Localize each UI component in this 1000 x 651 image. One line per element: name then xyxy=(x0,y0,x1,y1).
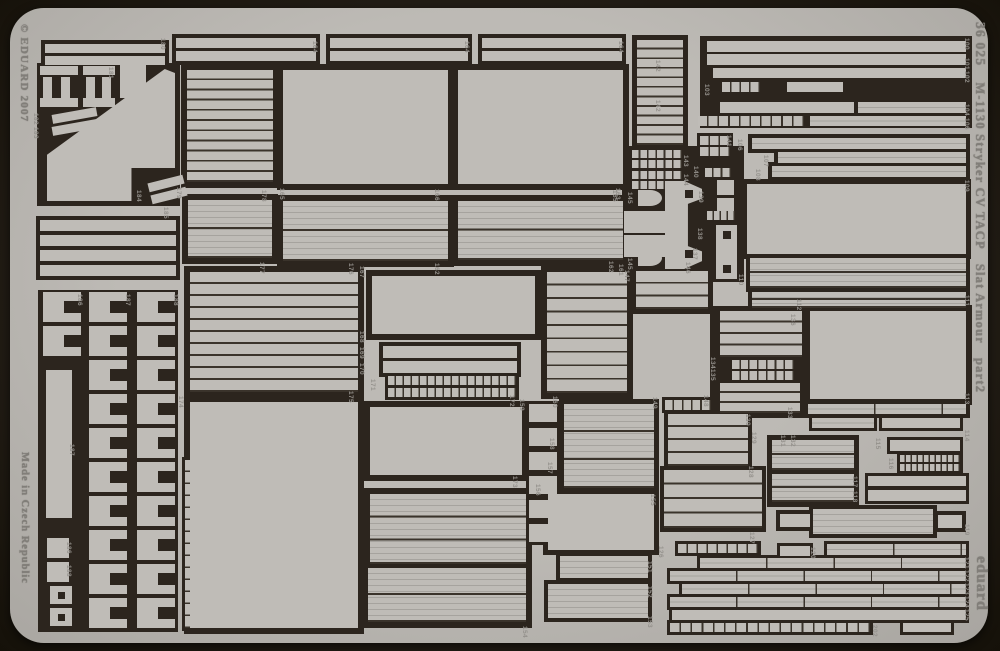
part-number-label: 110 xyxy=(737,274,744,286)
pe-part-slats xyxy=(190,402,358,628)
part-cutout xyxy=(58,592,65,599)
pe-part-strip xyxy=(670,597,966,607)
pe-part-slats xyxy=(637,40,683,145)
pe-part-lightgroup xyxy=(370,494,526,564)
part-number-label: 117 xyxy=(851,476,858,488)
sheet-title-text: 36 025M-1130 Stryker CV TACPSlat Armourp… xyxy=(972,22,988,393)
pe-part-plain xyxy=(624,211,669,233)
pe-part-ladder xyxy=(700,147,730,156)
part-number-label: 124 xyxy=(963,596,970,608)
part-number-label: 151 xyxy=(646,561,653,573)
part-number-label: 100 xyxy=(963,38,970,50)
pe-part-lightgroup xyxy=(564,404,654,488)
pe-part-cbracket xyxy=(89,292,127,322)
part-number-label: 155 xyxy=(649,494,656,506)
pe-part-slats xyxy=(190,272,358,392)
part-number-label: 202 xyxy=(871,625,878,637)
pe-part-slats xyxy=(458,70,623,184)
part-number-label: 145 xyxy=(626,192,633,204)
pe-part-strip xyxy=(752,138,966,149)
pe-part-strip xyxy=(700,558,966,568)
part-number-label: 170 xyxy=(358,363,365,375)
pe-part-ladder xyxy=(698,116,804,126)
pe-part-clip xyxy=(638,250,662,266)
pe-part-clip xyxy=(717,180,734,195)
part-number-label: 135 xyxy=(709,369,716,381)
pe-part-cbracket xyxy=(89,428,127,458)
part-number-label: 182 xyxy=(32,113,39,125)
pe-part-ladder xyxy=(383,346,517,358)
part-number-label: 186 xyxy=(76,294,83,306)
part-number-label: 171 xyxy=(369,379,376,391)
pe-part-ladder xyxy=(732,360,794,369)
pe-part-strip xyxy=(812,418,874,428)
part-cutout xyxy=(110,369,127,381)
part-number-label: 158 xyxy=(548,438,555,450)
pe-part-strip xyxy=(707,54,966,65)
pe-part-ladder xyxy=(45,56,165,65)
part-number-label: 133 xyxy=(786,407,793,419)
part-number-label: 164 xyxy=(463,41,470,53)
pe-part-plain xyxy=(43,77,52,98)
part-number-label: 160 xyxy=(551,396,558,408)
part-cutout xyxy=(158,437,175,449)
pe-part-ladder xyxy=(707,211,735,220)
part-number-label: 152 xyxy=(646,586,653,598)
pe-part-ladder xyxy=(330,51,468,61)
pe-part-slats xyxy=(283,70,448,184)
part-number-label: 101 xyxy=(963,58,970,70)
part-cutout xyxy=(58,614,65,621)
part-number-label: 121 xyxy=(963,557,970,569)
pe-part-ladder xyxy=(482,38,622,48)
part-number-label: 156 xyxy=(534,484,541,496)
part-number-label: 165 xyxy=(611,190,618,202)
pe-part-ladder xyxy=(330,38,468,48)
pe-part-plain xyxy=(61,77,70,98)
pe-part-ladder xyxy=(632,160,682,168)
part-number-label: 108 xyxy=(754,169,761,181)
pe-part-strip xyxy=(810,116,966,126)
pe-part-ladder xyxy=(868,490,966,501)
pe-part-cbracket xyxy=(89,360,127,390)
pe-part-ladder xyxy=(722,82,760,92)
part-cutout xyxy=(158,539,175,551)
part-number-label: 168 xyxy=(358,331,365,343)
pe-part-ladder xyxy=(383,361,517,373)
part-number-label: 153 xyxy=(646,616,653,628)
pe-part-ladder xyxy=(176,51,316,61)
pe-part-cbracket xyxy=(89,462,127,492)
photo-background: 1801641641641001011021031041061061071081… xyxy=(0,0,1000,651)
pe-part-cbracket xyxy=(89,326,127,356)
part-number-label: 141 xyxy=(725,135,732,147)
part-cutout xyxy=(110,505,127,517)
pe-part-ladder xyxy=(670,623,870,632)
part-number-label: 167 xyxy=(358,266,365,278)
pe-part-slats xyxy=(747,184,966,254)
part-number-label: 139 xyxy=(697,191,704,203)
part-number-label: 181 xyxy=(107,67,114,79)
part-number-label: 187 xyxy=(68,444,75,456)
pe-part-ladder xyxy=(900,455,960,462)
pe-part-strip xyxy=(858,102,966,113)
part-number-label: 187 xyxy=(124,294,131,306)
pe-part-cbracket xyxy=(137,496,175,526)
pe-part-ladder xyxy=(632,150,682,158)
part-number-label: 111 xyxy=(963,295,970,306)
part-cutout xyxy=(158,573,175,585)
made-in-text: Made in Czech Republic xyxy=(19,452,30,584)
part-cutout xyxy=(110,539,127,551)
pe-part-strip xyxy=(772,166,966,177)
part-cutout xyxy=(158,369,175,381)
part-number-label: 157 xyxy=(546,462,553,474)
pe-part-ladder xyxy=(40,250,176,261)
part-number-label: 172 xyxy=(508,395,515,407)
pe-part-cbracket xyxy=(137,462,175,492)
part-number-label: 179 xyxy=(175,187,182,199)
pe-part-strip xyxy=(682,584,966,594)
part-number-label: 175 xyxy=(347,391,354,403)
part-cutout xyxy=(158,403,175,415)
pe-part-ladder xyxy=(868,476,966,486)
part-number-label: 185 xyxy=(162,207,169,219)
part-number-label: 115 xyxy=(874,438,881,450)
pe-part-cbracket xyxy=(89,394,127,424)
part-number-label: 109 xyxy=(963,180,970,192)
part-number-label: 173 xyxy=(511,476,518,488)
pe-part-ladder xyxy=(176,38,316,48)
pe-part-plain xyxy=(938,515,962,528)
pe-part-slats xyxy=(636,271,708,309)
part-number-label: 165 xyxy=(278,188,285,200)
pe-part-ladder xyxy=(388,388,516,397)
pe-part-slats xyxy=(810,311,966,399)
pe-part-slats xyxy=(668,414,748,466)
part-number-label: 137 xyxy=(691,248,698,260)
pe-part-cbracket xyxy=(137,394,175,424)
part-cutout xyxy=(723,231,731,239)
part-number-label: 114 xyxy=(963,430,970,442)
part-number-label: 140 xyxy=(692,166,699,178)
part-number-label: 143 xyxy=(682,155,689,167)
part-number-label: 164 xyxy=(311,41,318,53)
part-number-label: 119 xyxy=(963,524,970,536)
part-number-label: 188 xyxy=(65,565,72,577)
pe-part-lightgroup xyxy=(752,292,966,308)
part-number-label: 162 xyxy=(607,261,614,273)
pe-part-ladder xyxy=(482,51,622,61)
pe-part-lightgroup xyxy=(813,509,933,534)
part-number-label: 131 xyxy=(779,435,786,447)
part-number-label: 122 xyxy=(963,570,970,582)
pe-part-plain xyxy=(83,98,115,107)
pe-part-cbracket xyxy=(43,326,81,356)
part-number-label: 159 xyxy=(518,399,525,411)
pe-part-strip xyxy=(670,571,966,581)
pe-part-ladder xyxy=(45,44,165,53)
part-number-label: 129 xyxy=(750,432,757,444)
pe-part-ring xyxy=(50,608,72,626)
pe-part-ladder xyxy=(678,544,758,553)
part-number-label: 116 xyxy=(887,458,894,470)
part-cutout xyxy=(158,335,175,347)
pe-part-plain xyxy=(102,77,111,98)
part-number-label: 144 xyxy=(682,174,689,186)
pe-part-cbracket xyxy=(137,598,175,628)
part-number-label: 130 xyxy=(744,414,751,426)
pe-part-cbracket xyxy=(89,496,127,526)
part-number-label: 106 xyxy=(736,139,743,151)
part-number-label: 127 xyxy=(748,532,755,544)
pe-part-ladder xyxy=(882,418,960,428)
pe-part-ladder xyxy=(890,440,960,451)
part-number-label: 134 xyxy=(709,357,716,369)
part-number-label: 183 xyxy=(32,127,39,139)
pe-part-lightgroup xyxy=(750,258,966,288)
pe-part-slats xyxy=(664,470,762,528)
kit-subtitle: Slat Armour xyxy=(973,264,987,344)
brand-logo-text: eduard xyxy=(972,556,990,611)
part-number-label: 162 xyxy=(433,263,440,275)
pe-part-plain xyxy=(86,77,95,98)
pe-part-ladder xyxy=(732,371,794,380)
part-number-label: 166 xyxy=(433,189,440,201)
part-number-label: 178 xyxy=(260,190,267,202)
pe-part-cbracket xyxy=(137,428,175,458)
part-number-label: 120 xyxy=(809,547,816,559)
part-number-label: 147 xyxy=(623,270,630,282)
part-cutout xyxy=(64,335,81,347)
part-number-label: 118 xyxy=(851,491,858,503)
pe-part-ladder xyxy=(40,265,176,276)
pe-part-cbracket xyxy=(137,326,175,356)
pe-part-holestrip xyxy=(716,225,737,279)
part-number-label: 177 xyxy=(258,262,265,274)
sheet-code: 36 025 xyxy=(973,22,988,66)
pe-part-ring xyxy=(50,586,72,604)
pe-part-ladder xyxy=(787,82,843,92)
part-cutout xyxy=(110,335,127,347)
part-number-label: 146 xyxy=(684,262,691,274)
pe-part-strip xyxy=(778,152,966,163)
part-number-label: 128 xyxy=(747,466,754,478)
part-number-label: 176 xyxy=(347,263,354,275)
pe-part-cbracket xyxy=(137,564,175,594)
pe-part-slats xyxy=(187,70,273,182)
part-number-label: 142 xyxy=(654,60,661,72)
pe-part-lightgroup xyxy=(458,201,623,260)
pe-part-cbracket xyxy=(89,564,127,594)
part-number-label: 136 xyxy=(789,314,796,326)
part-number-label: 112 xyxy=(795,299,802,311)
pe-part-ladder xyxy=(720,102,854,113)
part-number-label: 138 xyxy=(696,228,703,240)
part-cutout xyxy=(158,471,175,483)
part-number-label: 164 xyxy=(617,41,624,53)
part-number-label: 148 xyxy=(702,395,709,407)
pe-part-plain xyxy=(40,66,78,75)
part-number-label: 169 xyxy=(358,347,365,359)
part-cutout xyxy=(158,505,175,517)
part-number-label: 161 xyxy=(617,264,624,276)
pe-part-lightgroup xyxy=(368,568,526,622)
part-cutout xyxy=(723,265,731,273)
kit-title: M-1130 Stryker CV TACP xyxy=(973,82,987,249)
pe-part-ladder xyxy=(388,376,516,385)
part-number-label: 154 xyxy=(521,626,528,638)
part-number-label: 132 xyxy=(789,435,796,447)
part-number-label: 125 xyxy=(963,609,970,621)
part-cutout xyxy=(110,437,127,449)
part-number-label: 186 xyxy=(65,542,72,554)
part-cutout xyxy=(110,607,127,619)
pe-part-ladder xyxy=(705,168,731,177)
pe-part-cbracket xyxy=(137,530,175,560)
part-cutout xyxy=(110,471,127,483)
pe-part-plain xyxy=(780,546,810,556)
pe-part-lightgroup xyxy=(772,474,854,502)
pe-part-strip xyxy=(827,544,966,555)
pe-part-lightgroup xyxy=(372,276,535,334)
pe-part-cbracket xyxy=(89,530,127,560)
part-number-label: 149 xyxy=(651,397,658,409)
pe-part-ladder xyxy=(672,610,966,620)
part-cutout xyxy=(110,573,127,585)
pe-part-cbracket xyxy=(89,598,127,628)
part-number-label: 103 xyxy=(703,84,710,96)
pe-part-ladder xyxy=(40,220,176,231)
part-cutout xyxy=(685,190,693,198)
pe-part-plain xyxy=(560,556,648,578)
pe-part-strip xyxy=(707,41,966,52)
pe-part-plain xyxy=(548,584,648,618)
pe-part-cbracket xyxy=(137,360,175,390)
pe-part-strip xyxy=(713,68,966,78)
pe-part-ladder xyxy=(632,171,682,179)
part-number-label: 113 xyxy=(963,393,970,405)
part-number-label: 102 xyxy=(963,71,970,83)
pe-part-plain xyxy=(780,514,810,527)
pe-part-cbracket xyxy=(137,292,175,322)
part-number-label: 180 xyxy=(159,38,166,50)
part-number-label: 104 xyxy=(963,104,970,116)
part-number-label: 106 xyxy=(963,118,970,130)
part-number-label: 145 xyxy=(626,258,633,270)
part-number-label: 188 xyxy=(172,294,179,306)
pe-part-plain xyxy=(40,98,78,107)
part-cutout xyxy=(110,403,127,415)
part-number-label: 123 xyxy=(963,583,970,595)
part-number-label: 184 xyxy=(135,190,142,202)
pe-part-lightgroup xyxy=(370,407,522,475)
kit-part-label: part2 xyxy=(973,358,987,393)
pe-part-lightgroup xyxy=(548,494,654,550)
pe-part-ladder xyxy=(40,235,176,246)
pe-part-plain xyxy=(903,623,951,632)
pe-part-clip xyxy=(638,190,662,206)
copyright-text: © EDUARD 2007 xyxy=(18,24,30,122)
pe-part-strip xyxy=(808,404,966,414)
pe-part-ladder xyxy=(900,464,960,471)
part-number-label: 174 xyxy=(177,396,184,408)
pe-part-lightgroup xyxy=(283,201,448,261)
part-cutout xyxy=(158,607,175,619)
pe-part-slats xyxy=(547,272,627,393)
pe-part-lightgroup xyxy=(188,200,272,258)
part-number-label: 107 xyxy=(762,155,769,167)
part-number-label: 142 xyxy=(654,100,661,112)
part-number-label: 126 xyxy=(657,546,664,558)
